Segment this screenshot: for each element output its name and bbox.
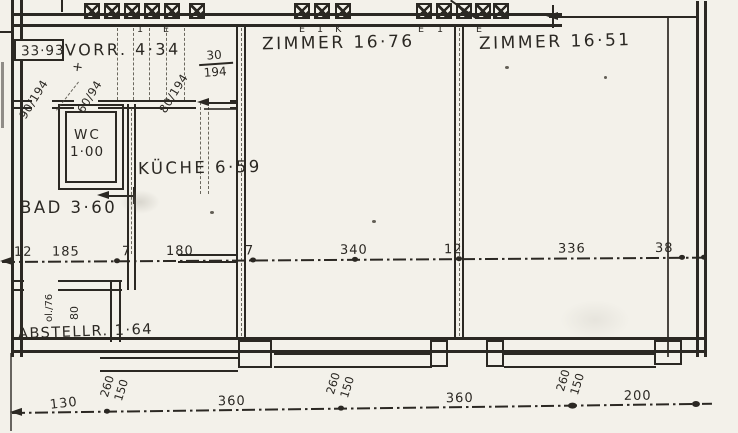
tick-mark xyxy=(61,0,63,12)
room-label-wc: WC xyxy=(74,127,101,143)
dimension-label: 360 xyxy=(446,391,474,406)
dimension-label: 180 xyxy=(166,244,194,259)
interior-line xyxy=(667,16,669,357)
dimension-dot xyxy=(114,258,120,263)
scan-speck xyxy=(505,66,509,69)
dimension-label: 340 xyxy=(340,243,368,258)
abstell-annotation: 80 xyxy=(68,306,81,320)
window-sill-line xyxy=(504,366,656,368)
room-label-zimmer-1: ZIMMER 16·76 xyxy=(262,32,415,55)
flue-box-icon xyxy=(189,3,205,19)
room-label-vorraum: VORR. 4·34 xyxy=(65,39,181,59)
dashed-line xyxy=(117,28,118,100)
arrowhead-icon xyxy=(197,98,209,106)
pier xyxy=(430,340,448,367)
pier xyxy=(238,340,272,368)
arrowhead-icon xyxy=(0,257,12,265)
wall-right xyxy=(696,1,707,357)
dimension-label: 185 xyxy=(52,245,80,260)
dimension-line-middle: 12 185 7 180 7 340 12 336 38 xyxy=(0,241,738,272)
plus-mark: + xyxy=(71,59,84,75)
dimension-label: 336 xyxy=(558,241,586,256)
flue-box-icon xyxy=(335,3,351,19)
dashed-line xyxy=(208,102,209,194)
scan-smudge xyxy=(120,190,160,214)
pier xyxy=(486,340,504,367)
flue-box-icon xyxy=(493,3,509,19)
wall-stub xyxy=(0,31,13,33)
flue-label: 1 xyxy=(137,24,144,35)
door-arrow-icon xyxy=(204,102,238,104)
flue-box-icon xyxy=(436,3,452,19)
dimension-label: 7 xyxy=(245,243,254,258)
total-area-box: 33·93 xyxy=(14,39,64,61)
dimension-label: 7 xyxy=(122,244,131,259)
window-sill-line xyxy=(504,353,656,355)
flue-box-icon xyxy=(84,3,100,19)
wall-centerline xyxy=(131,108,132,254)
door-arrow-icon xyxy=(204,108,238,110)
tick-mark xyxy=(236,90,238,114)
dashed-line xyxy=(200,102,201,194)
flue-box-icon xyxy=(475,3,491,19)
dimension-dot xyxy=(679,255,685,260)
dimension-label: 38 xyxy=(655,241,674,256)
scan-smudge xyxy=(560,300,630,340)
floor-plan: 1 E E 1 K E 1 E 33·93 VORR. 4·34 ZIMMER … xyxy=(0,0,738,433)
dimension-dot xyxy=(701,255,707,260)
dimension-label: 12 xyxy=(444,242,463,257)
scan-speck xyxy=(372,220,376,223)
window-sill-line xyxy=(100,370,238,372)
window-sill-line xyxy=(100,357,238,359)
room-label-zimmer-2: ZIMMER 16·51 xyxy=(479,30,632,54)
flue-box-icon xyxy=(124,3,140,19)
dimension-dot xyxy=(692,401,700,407)
total-area-value: 33·93 xyxy=(21,43,65,60)
fraction-numerator: 30 xyxy=(206,48,222,63)
scan-edge-artifact xyxy=(1,62,4,128)
dimension-label: 360 xyxy=(218,394,246,409)
dimension-label: 200 xyxy=(624,389,652,404)
room-label-bad: BAD 3·60 xyxy=(20,198,117,217)
room-label-kueche: KÜCHE 6·59 xyxy=(138,157,262,178)
window-size-pair: 260 150 xyxy=(560,375,590,409)
window-size-pair: 260 150 xyxy=(104,381,134,415)
window-size-fraction: 30 194 xyxy=(198,47,232,49)
dimension-label: 12 xyxy=(14,245,33,260)
flue-box-icon xyxy=(144,3,160,19)
scan-speck xyxy=(604,76,607,79)
window-sill-line xyxy=(274,353,432,355)
flue-box-icon xyxy=(314,3,330,19)
window-sill-line xyxy=(274,366,432,368)
arrowhead-icon xyxy=(10,408,22,416)
tick-mark xyxy=(552,5,554,28)
window-size-pair: 260 150 xyxy=(330,378,360,412)
dimension-line-top-right xyxy=(549,16,699,18)
abstell-annotation: ol./76 xyxy=(44,294,55,322)
flue-box-icon xyxy=(416,3,432,19)
dashed-line xyxy=(133,28,134,100)
flue-box-icon xyxy=(164,3,180,19)
scan-speck xyxy=(210,211,214,214)
flue-box-icon xyxy=(104,3,120,19)
fraction-denominator: 194 xyxy=(203,64,227,80)
flue-label: E 1 xyxy=(418,24,444,35)
wall-centerline xyxy=(459,28,460,336)
flue-box-icon xyxy=(294,3,310,19)
room-area-wc: 1·00 xyxy=(70,144,104,160)
wall-centerline xyxy=(241,28,242,336)
wall-abstell-seg xyxy=(12,280,24,291)
dimension-line-bottom: 130 260 150 360 260 150 360 260 150 200 xyxy=(8,386,720,429)
